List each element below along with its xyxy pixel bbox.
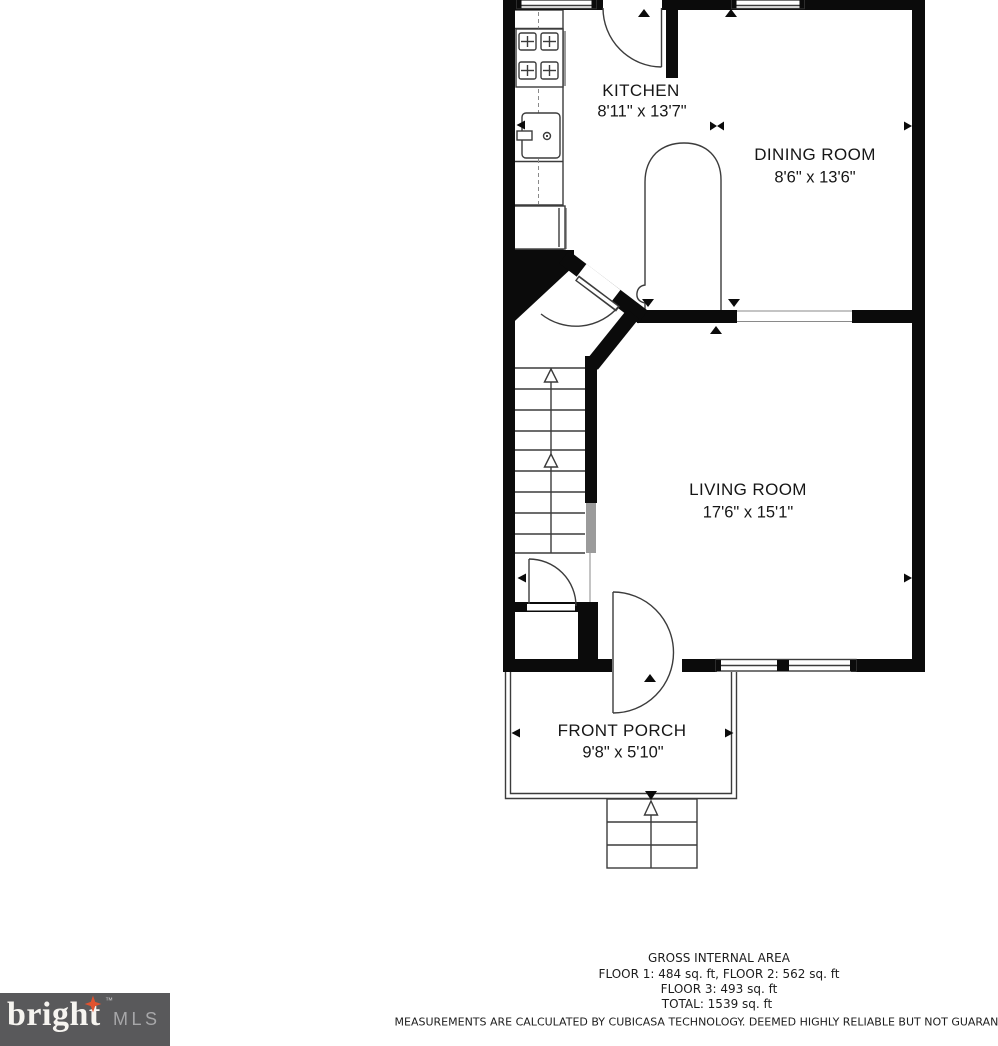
stairs-up-arrow [545, 454, 558, 467]
brightmls-logo: bright ™ MLS [0, 993, 170, 1046]
door-swing-arc [603, 8, 662, 67]
logo-mls-text: MLS [113, 1009, 161, 1030]
room-label-front-porch: FRONT PORCH [558, 721, 687, 741]
room-dims-living-room: 17'6" x 15'1" [703, 504, 794, 523]
room-dims-kitchen: 8'11" x 13'7" [597, 103, 686, 122]
window-living-room [716, 660, 856, 672]
sink-icon [517, 113, 560, 158]
door-swing-arc [529, 559, 576, 606]
room-label-living-room: LIVING ROOM [689, 480, 807, 500]
window-top-right [732, 0, 804, 9]
stairs-up-arrow [545, 369, 558, 382]
door-swing-arc [613, 592, 673, 713]
area-disclaimer: MEASUREMENTS ARE CALCULATED BY CUBICASA … [395, 1016, 998, 1029]
area-total: TOTAL: 1539 sq. ft [662, 997, 773, 1011]
kitchen-door [603, 8, 662, 67]
dining-table [637, 143, 721, 310]
room-label-dining-room: DINING ROOM [754, 145, 876, 165]
room-dims-front-porch: 9'8" x 5'10" [582, 744, 663, 763]
room-dims-dining-room: 8'6" x 13'6" [774, 169, 855, 188]
entry-steps [607, 791, 697, 868]
windows [517, 0, 856, 671]
closet-door [529, 559, 576, 606]
area-floor-3: FLOOR 3: 493 sq. ft [661, 982, 778, 996]
area-summary-title: GROSS INTERNAL AREA [648, 951, 790, 965]
window-top-left [517, 0, 596, 9]
door-swing-arc [541, 306, 619, 326]
staircase [513, 368, 590, 602]
front-door [613, 592, 673, 713]
measurement-markers [512, 9, 913, 738]
star-icon [84, 995, 102, 1013]
fridge-icon [514, 206, 567, 249]
logo-trademark: ™ [105, 996, 113, 1005]
stove-icon [516, 29, 566, 87]
room-label-kitchen: KITCHEN [602, 81, 679, 101]
floorplan-page: KITCHEN 8'11" x 13'7" DINING ROOM 8'6" x… [0, 0, 998, 1046]
walls [503, 0, 925, 672]
area-floor-1-2: FLOOR 1: 484 sq. ft, FLOOR 2: 562 sq. ft [599, 967, 840, 981]
